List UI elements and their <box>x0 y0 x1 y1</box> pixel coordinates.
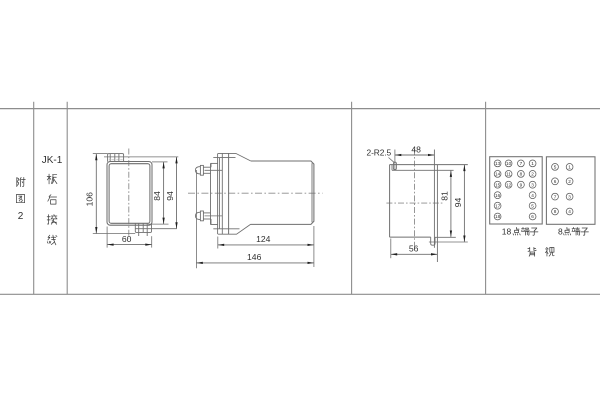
svg-text:17: 17 <box>495 203 501 208</box>
svg-text:1: 1 <box>531 161 534 166</box>
svg-text:12: 12 <box>506 182 512 187</box>
svg-text:4: 4 <box>531 193 534 198</box>
svg-text:94: 94 <box>453 198 463 208</box>
svg-text:8: 8 <box>520 172 523 177</box>
svg-text:9: 9 <box>520 182 523 187</box>
svg-text:8: 8 <box>554 209 557 214</box>
svg-text:11: 11 <box>506 172 511 177</box>
svg-text:5: 5 <box>554 165 557 170</box>
svg-text:6: 6 <box>531 214 534 219</box>
svg-text:10: 10 <box>506 161 512 166</box>
svg-text:3: 3 <box>568 194 571 199</box>
svg-text:6: 6 <box>554 179 557 184</box>
svg-text:18: 18 <box>495 214 501 219</box>
svg-text:2: 2 <box>18 211 24 222</box>
svg-text:2: 2 <box>531 172 534 177</box>
svg-text:4: 4 <box>568 209 571 214</box>
svg-text:2: 2 <box>568 179 571 184</box>
svg-text:3: 3 <box>531 182 534 187</box>
svg-text:84: 84 <box>152 191 162 201</box>
svg-text:60: 60 <box>122 234 132 244</box>
svg-text:56: 56 <box>409 244 419 254</box>
svg-text:8: 8 <box>558 227 563 237</box>
svg-text:94: 94 <box>165 191 175 201</box>
svg-text:18: 18 <box>502 227 512 237</box>
svg-text:146: 146 <box>247 252 262 262</box>
svg-text:7: 7 <box>520 161 523 166</box>
svg-text:106: 106 <box>85 192 95 207</box>
svg-text:81: 81 <box>439 191 449 201</box>
svg-text:13: 13 <box>495 161 501 166</box>
svg-text:JK-1: JK-1 <box>42 155 63 166</box>
svg-text:2-R2.5: 2-R2.5 <box>367 148 392 158</box>
svg-text:15: 15 <box>495 182 501 187</box>
svg-text:7: 7 <box>554 194 557 199</box>
svg-text:14: 14 <box>495 172 501 177</box>
svg-text:1: 1 <box>568 165 571 170</box>
svg-text:16: 16 <box>495 193 501 198</box>
svg-text:48: 48 <box>411 145 421 155</box>
svg-text:5: 5 <box>531 203 534 208</box>
svg-text:124: 124 <box>256 234 271 244</box>
